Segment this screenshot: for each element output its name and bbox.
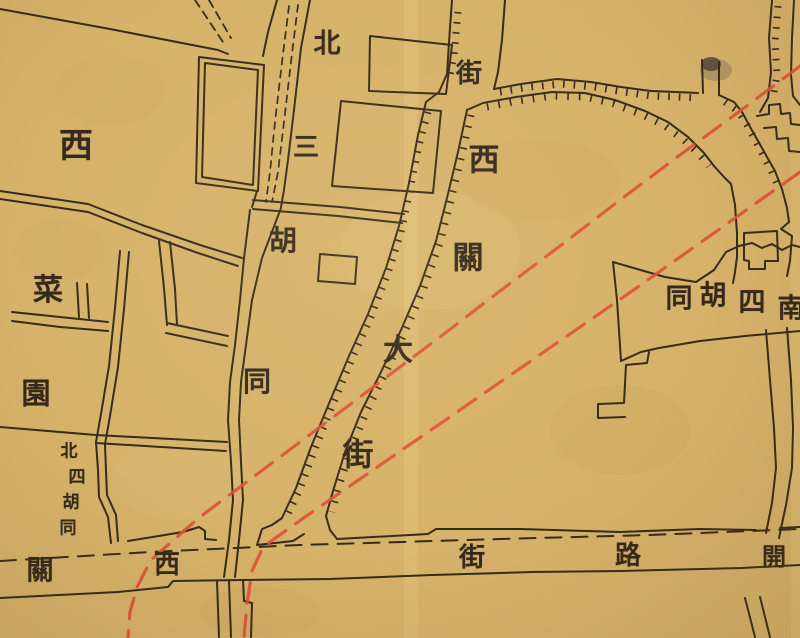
stub-lane bbox=[702, 60, 703, 93]
label-xiguan-dajie-2: 關 bbox=[453, 244, 484, 275]
label-south-fourth-hutong-4: 南 bbox=[778, 296, 800, 323]
light-spot bbox=[110, 440, 250, 520]
label-xiguan-dajie-4: 街 bbox=[343, 441, 374, 472]
label-north-third-hutong-3: 胡 bbox=[269, 227, 297, 255]
label-south-fourth-hutong-2: 胡 bbox=[700, 283, 727, 310]
label-bottom-east-2: 路 bbox=[615, 543, 641, 569]
label-top-street: 街 bbox=[456, 61, 482, 87]
label-bottom-west-2: 西 bbox=[154, 552, 180, 578]
label-bottom-east-3: 開 bbox=[762, 545, 786, 569]
stain bbox=[55, 55, 165, 125]
label-caiyuan-1: 菜 bbox=[33, 276, 63, 306]
label-north-third-hutong-1: 北 bbox=[314, 31, 341, 58]
label-north-fourth-hutong-1: 北 bbox=[61, 444, 78, 461]
label-bottom-east-1: 街 bbox=[459, 545, 485, 571]
stain bbox=[15, 220, 105, 280]
map-canvas bbox=[0, 0, 800, 638]
label-south-fourth-hutong-1: 同 bbox=[666, 286, 693, 313]
label-north-fourth-hutong-2: 四 bbox=[69, 470, 86, 487]
label-caiyuan-2: 園 bbox=[21, 380, 50, 409]
label-north-third-hutong-4: 同 bbox=[243, 368, 271, 396]
label-xiguan-dajie-3: 大 bbox=[383, 336, 413, 366]
light-spot bbox=[340, 190, 520, 310]
street-edge-north bbox=[780, 527, 800, 528]
historical-map: 西 菜 園 北 三 胡 同 街 西 關 大 街 同 胡 四 南 北 四 胡 同 … bbox=[0, 0, 800, 638]
label-north-fourth-hutong-4: 同 bbox=[60, 521, 77, 538]
label-bottom-west-1: 關 bbox=[27, 558, 54, 585]
label-north-fourth-hutong-3: 胡 bbox=[63, 495, 80, 512]
label-north-third-hutong-2: 三 bbox=[293, 135, 319, 161]
stain bbox=[550, 385, 690, 475]
label-south-fourth-hutong-3: 四 bbox=[739, 290, 766, 317]
label-xiguan-dajie-1: 西 bbox=[469, 146, 500, 177]
label-west-block: 西 bbox=[59, 129, 93, 163]
